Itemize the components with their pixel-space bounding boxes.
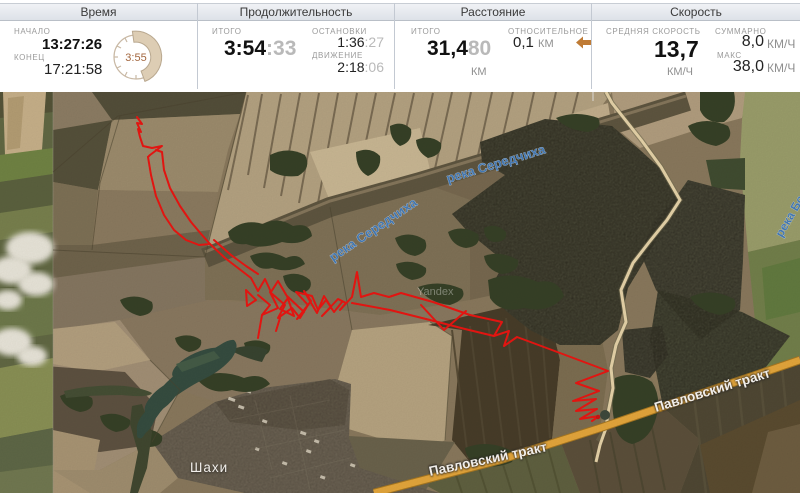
svg-text:3:55: 3:55 — [125, 52, 146, 64]
